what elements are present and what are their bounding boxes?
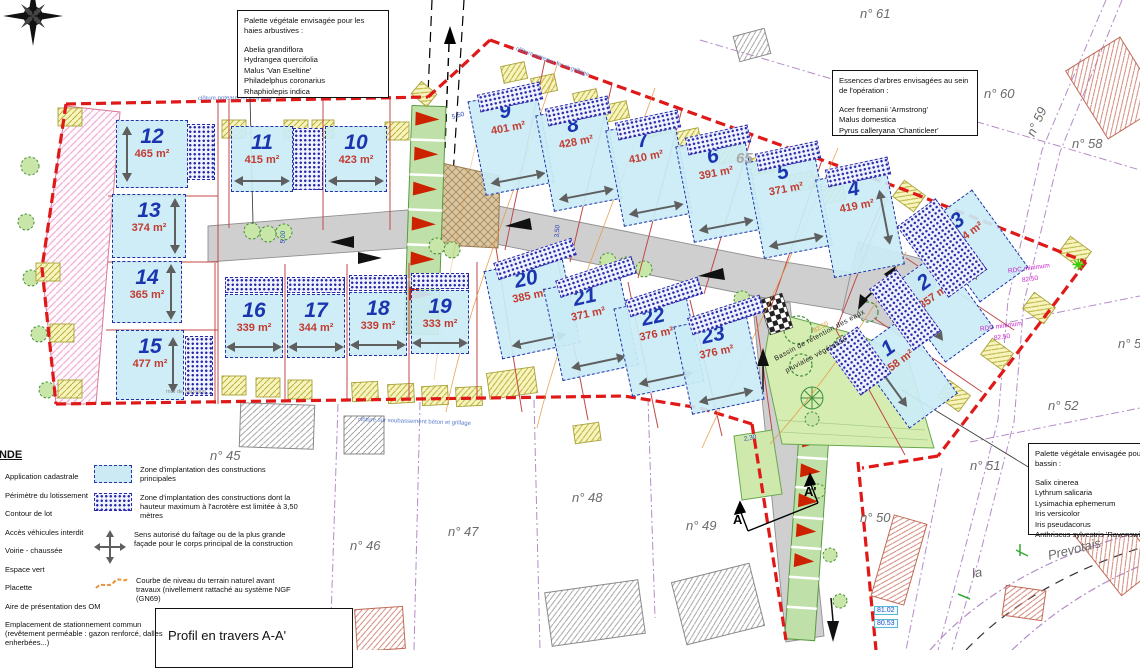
legend-row: Zone d'implantation des constructions pr… bbox=[94, 465, 299, 483]
hedge-palette-species: Abelia grandifloraHydrangea quercifoliaM… bbox=[244, 45, 382, 97]
legend-item-label: Sens autorisé du faîtage ou de la plus g… bbox=[134, 530, 299, 548]
legend-row: Courbe de niveau du terrain naturel avan… bbox=[94, 576, 299, 603]
legend-item-label: Zone d'implantation des constructions pr… bbox=[140, 465, 299, 483]
lot-number: 16 bbox=[242, 300, 265, 321]
orientation-arrow-icon bbox=[421, 342, 459, 344]
legend-item-label: Courbe de niveau du terrain naturel avan… bbox=[136, 576, 299, 603]
lot-area: 419 m² bbox=[839, 197, 876, 215]
parcel-label: n° 46 bbox=[350, 538, 381, 553]
height-limited-zone-hatch bbox=[225, 277, 283, 293]
basin-palette-title: Palette végétale envisagée pour le bassi… bbox=[1035, 449, 1140, 470]
lot-11: 11415 m² bbox=[231, 126, 293, 192]
lot-12: 12465 m² bbox=[116, 120, 188, 188]
tree-species-title: Essences d'arbres envisagées au sein de … bbox=[839, 76, 971, 97]
lot-number: 14 bbox=[135, 267, 158, 288]
orientation-arrow-icon bbox=[297, 346, 335, 348]
lot-area: 374 m² bbox=[132, 222, 167, 234]
lot-17: 17344 m² bbox=[287, 294, 345, 358]
lot-area: 465 m² bbox=[135, 148, 170, 160]
map-annotation: mur de parpaing bbox=[166, 389, 206, 395]
lot-area: 391 m² bbox=[698, 164, 735, 182]
orientation-arrow-icon bbox=[126, 135, 128, 173]
lot-area: 371 m² bbox=[768, 180, 805, 198]
species-item: Malus 'Van Eseltine' bbox=[244, 66, 382, 76]
basin-palette-box: Palette végétale envisagée pour le bassi… bbox=[1028, 443, 1140, 535]
orientation-arrow-icon bbox=[567, 190, 605, 199]
species-item: Salix cinerea bbox=[1035, 478, 1140, 488]
lot-number: 18 bbox=[366, 298, 389, 319]
species-item: Acer freemanii 'Armstrong' bbox=[839, 105, 971, 115]
lot-area: 365 m² bbox=[130, 289, 165, 301]
orientation-arrow-icon bbox=[647, 373, 685, 383]
legend-right-items: Zone d'implantation des constructions pr… bbox=[94, 465, 299, 613]
map-annotation: 5,00 bbox=[280, 231, 287, 244]
height-limited-zone-hatch bbox=[287, 277, 345, 293]
lot-number: 11 bbox=[251, 132, 273, 153]
orientation-arrow-icon bbox=[637, 205, 675, 214]
lot-area: 339 m² bbox=[361, 320, 396, 332]
site-plan-page: { "boxes": { "hedge_palette": { "title":… bbox=[0, 0, 1140, 650]
basin-palette-species: Salix cinereaLythrum salicariaLysimachia… bbox=[1035, 478, 1140, 541]
orientation-arrow-icon bbox=[707, 221, 745, 230]
lot-area: 415 m² bbox=[245, 154, 280, 166]
parcel-label: n° 5 bbox=[1118, 336, 1140, 351]
lot-area: 339 m² bbox=[237, 322, 272, 334]
parcel-label: n° 58 bbox=[1072, 136, 1103, 151]
orientation-arrow-icon bbox=[235, 346, 273, 348]
height-limited-zone-hatch bbox=[185, 336, 213, 396]
species-item: Lythrum salicaria bbox=[1035, 488, 1140, 498]
parcel-label: n° 49 bbox=[686, 518, 717, 533]
lot-number: 10 bbox=[344, 132, 367, 153]
parcel-label: n° 60 bbox=[984, 86, 1015, 101]
lot-10: 10423 m² bbox=[325, 126, 387, 192]
sens-faitage-icon bbox=[94, 530, 126, 566]
lot-area: 344 m² bbox=[299, 322, 334, 334]
legend-item-label: Zone d'implantation des constructions do… bbox=[140, 493, 299, 520]
orientation-arrow-icon bbox=[707, 391, 745, 401]
species-item: Pyrus calleryana 'Chanticleer' bbox=[839, 126, 971, 136]
lot-number: 13 bbox=[137, 200, 160, 221]
lot-number: 12 bbox=[140, 126, 163, 147]
tree-species-box: Essences d'arbres envisagées au sein de … bbox=[832, 70, 978, 136]
pinwheel-tree-icon bbox=[801, 387, 823, 409]
species-item: Rhaphiolepis indica bbox=[244, 87, 382, 97]
lot-18: 18339 m² bbox=[349, 292, 407, 356]
legend-title: LEGENDE bbox=[0, 449, 22, 461]
lot-area: 428 m² bbox=[558, 133, 595, 151]
hedge-palette-box: Palette végétale envisagée pour les haie… bbox=[237, 10, 389, 98]
species-item: Abelia grandiflora bbox=[244, 45, 382, 55]
orientation-arrow-icon bbox=[777, 237, 815, 246]
height-limited-zone-hatch bbox=[187, 124, 215, 180]
legend-item: Emplacement de stationnement commun (rev… bbox=[5, 620, 173, 647]
zone-principale-icon bbox=[94, 465, 132, 483]
parcel-label: n° 48 bbox=[572, 490, 603, 505]
map-annotation: 3,50 bbox=[554, 225, 562, 238]
lot-13: 13374 m² bbox=[112, 194, 186, 258]
orientation-arrow-icon bbox=[243, 180, 281, 182]
height-limited-zone-hatch bbox=[293, 128, 323, 190]
orientation-arrow-icon bbox=[880, 198, 889, 236]
orientation-arrow-icon bbox=[359, 344, 397, 346]
lot-area: 401 m² bbox=[490, 119, 527, 137]
lot-number: 15 bbox=[138, 336, 161, 357]
species-item: Malus domestica bbox=[839, 115, 971, 125]
lot-19: 19333 m² bbox=[411, 290, 469, 354]
parcel-label: n° 47 bbox=[448, 524, 479, 539]
lot-14: 14365 m² bbox=[112, 261, 182, 323]
legend-row: Zone d'implantation des constructions do… bbox=[94, 493, 299, 520]
map-annotation: A' bbox=[804, 484, 816, 499]
orientation-arrow-icon bbox=[172, 346, 174, 384]
map-annotation: ✳ bbox=[1072, 256, 1085, 274]
lot-area: 423 m² bbox=[339, 154, 374, 166]
species-item: Lysimachia ephemerum bbox=[1035, 499, 1140, 509]
lot-area: 477 m² bbox=[133, 358, 168, 370]
lot-16: 16339 m² bbox=[225, 294, 283, 358]
parcel-label: n° 52 bbox=[1048, 398, 1079, 413]
orientation-arrow-icon bbox=[170, 273, 172, 311]
species-item: Iris versicolor bbox=[1035, 509, 1140, 519]
lot-number: 19 bbox=[428, 296, 451, 317]
orientation-arrow-icon bbox=[580, 357, 618, 367]
tree-species-list: Acer freemanii 'Armstrong'Malus domestic… bbox=[839, 105, 971, 136]
lot-number: 17 bbox=[304, 300, 327, 321]
parcel-label: n° 61 bbox=[860, 6, 891, 21]
height-limited-zone-hatch bbox=[411, 273, 469, 289]
map-annotation: 81.02 bbox=[874, 606, 898, 615]
legend-row: Sens autorisé du faîtage ou de la plus g… bbox=[94, 530, 299, 566]
species-item: Anthriscus sylvestris 'Ravenswing' bbox=[1035, 530, 1140, 540]
species-item: Hydrangea quercifolia bbox=[244, 55, 382, 65]
map-annotation: A bbox=[733, 512, 742, 527]
map-annotation: 65 bbox=[736, 150, 753, 167]
species-item: Philadelphus coronarius bbox=[244, 76, 382, 86]
lot-area: 410 m² bbox=[628, 148, 665, 166]
lot-area: 333 m² bbox=[423, 318, 458, 330]
parcel-label: n° 51 bbox=[970, 458, 1001, 473]
hedge-palette-title: Palette végétale envisagée pour les haie… bbox=[244, 16, 382, 37]
orientation-arrow-icon bbox=[499, 174, 537, 183]
height-limited-zone-hatch bbox=[349, 275, 407, 291]
leg: LEGENDE Application cadastralePérimètre … bbox=[0, 445, 310, 650]
zone-acrotere-icon bbox=[94, 493, 132, 511]
orientation-arrow-icon bbox=[337, 180, 375, 182]
orientation-arrow-icon bbox=[174, 207, 176, 245]
map-annotation: 80.53 bbox=[874, 619, 898, 628]
courbe-niveau-icon bbox=[94, 576, 128, 592]
species-item: Iris pseudacorus bbox=[1035, 520, 1140, 530]
parcel-label: n° 50 bbox=[860, 510, 891, 525]
